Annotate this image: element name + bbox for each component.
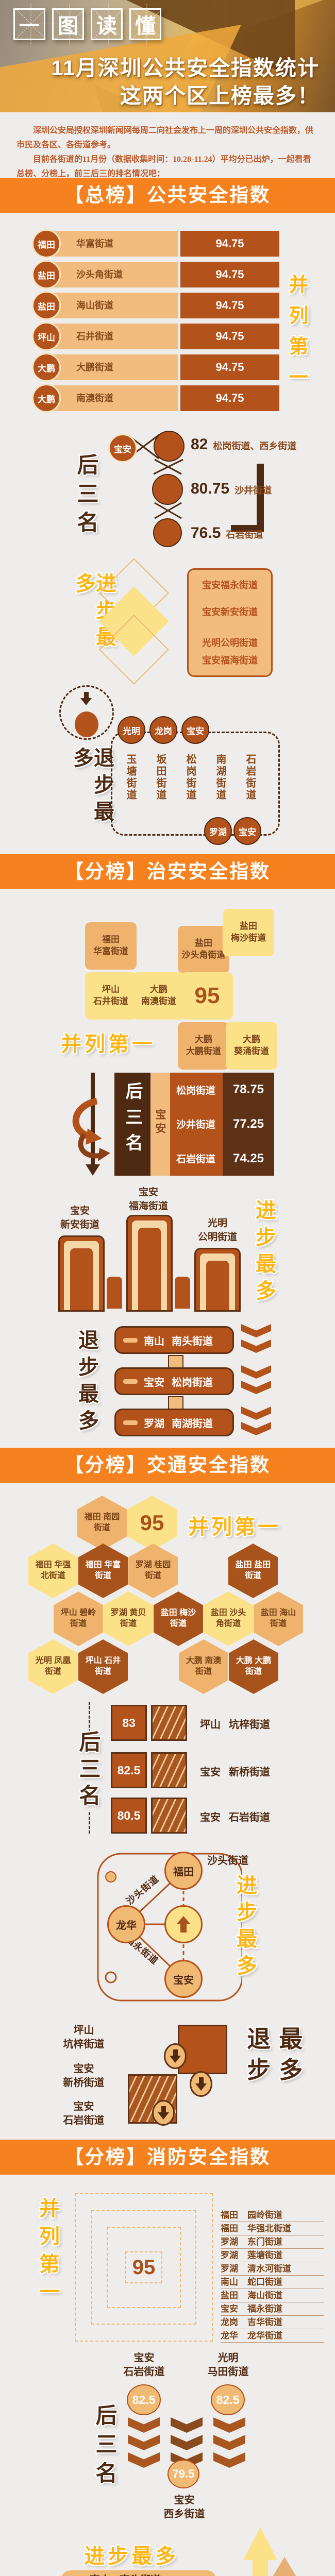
score-circle: 82.5 [127,2384,161,2415]
hex-tile: 大鹏 大鹏街道 [229,1639,278,1694]
bottom-three-entry: 宝安新桥街道 [200,1764,278,1778]
bottom-three-entry: 80.75沙井街道 [191,480,272,498]
rank-row: 大鹏街道94.75大鹏 [32,354,279,380]
district-badge: 大鹏 [32,384,61,413]
street-bar: 大鹏街道 [46,354,178,380]
badge-box: 一 [13,8,45,40]
district-badge: 光明 [118,716,145,744]
puzzle-tile: 盐田沙头角街道 [178,926,229,973]
bar-label: 宝安新安街道 [49,1205,111,1232]
tied-first-label: 并列第一 [188,1510,281,1540]
intro-paragraphs: 深圳公安局授权深圳新闻网每周二向社会发布上一周的深圳公共安全指数，供市民及各区、… [0,112,335,178]
overall-most-declined: 退步最多 光明 龙岗 宝安 玉塘街道 坂田街道 松岗街道 南湖街道 石岩街道 罗… [0,684,335,846]
rank-node [152,474,183,505]
district-badge: 龙岗 [149,716,177,744]
list-row: 罗湖清水河街道 [221,2262,324,2276]
district-badge: 宝安 [181,716,209,744]
overall-first-ranking: 华富街道94.75福田 沙头角街道94.75盐田 海山街道94.75盐田 石井街… [0,231,335,414]
rank-row: 石井街道94.75坪山 [32,324,279,349]
decline-street: 坂田街道 [155,754,165,813]
up-arrow-icon [243,2527,277,2576]
badge-box: 读 [91,8,123,40]
puzzle-tile: 盐田梅沙街道 [223,909,274,956]
decline-entry: 坪山坑梓街道 [46,2024,121,2052]
bottom-three-label: 后三名 [75,453,97,540]
hex-tile: 盐田 梅沙街道 [154,1591,203,1646]
hex-tile: 大鹏 南澳街道 [179,1639,228,1694]
rank-row: 海山街道94.75盐田 [32,293,279,318]
district-badge: 盐田 [32,291,61,320]
bar-label: 宝安福海街道 [118,1186,179,1213]
section-title-police: 【分榜】治安安全指数 [0,854,335,889]
yitu-dudong-badge: 一 图 读 懂 [13,8,168,40]
score-value: 78.75 [223,1082,274,1097]
score-value: 95 [125,2251,162,2283]
improve-street: 光明公明街道 [189,636,271,649]
hex-tile: 盐田 沙头角街道 [204,1591,253,1646]
decline-street: 南湖街道 [215,754,225,813]
decline-entry: 宝安新桥街道 [46,2062,121,2090]
decline-row: 南山南头街道 [114,1326,234,1354]
hex-tile: 福田 华富街道 [78,1544,128,1598]
score-bar: 94.75 [180,231,279,257]
intro-p1: 深圳公安局授权深圳新闻网每周二向社会发布上一周的深圳公共安全指数，供市民及各区、… [16,124,319,152]
score-square: 82.5 [111,1752,147,1788]
badge-box: 图 [52,8,84,40]
down-arrow-dot [164,2043,187,2069]
street-label: 沙头街道 [207,1852,248,1867]
improve-street: 宝安福海街道 [189,653,271,667]
improve-diagram-lines [67,1846,242,2011]
score-tile: 95 [181,972,233,1020]
score-bar: 94.75 [180,262,279,287]
score-hex: 95 [127,1496,177,1550]
puzzle-tile: 大鹏葵涌街道 [226,1022,277,1070]
decline-row: 宝安松岗街道 [114,1367,234,1395]
list-row: 盐田海山街道 [221,2289,324,2302]
improve-label: 进步最多 [254,1199,274,1307]
solid-square [178,2025,227,2074]
hex-tile: 坪山 碧岭街道 [54,1591,103,1646]
fire-most-improved: 进步最多 南山南头街道 宝安福永街道 龙华龙华街道 [0,2527,335,2576]
down-chevrons-icon [213,2417,245,2470]
bottom-three-entry: 76.5石岩街道 [191,524,263,542]
decline-street: 玉塘街道 [125,754,136,813]
puzzle-tile: 大鹏大鹏街道 [178,1022,229,1070]
down-chevrons-icon [241,1365,271,1396]
tied-first-label: 并列第一 [287,274,306,398]
bottom-entry-label: 宝安石岩街道 [114,2351,174,2379]
improve-street-box: 宝安福永街道 宝安新安街道 光明公明街道 宝安福海街道 [187,568,273,677]
hex-tile: 罗湖 黄贝街道 [104,1591,153,1646]
tied-first-label: 并列第一 [37,2197,58,2309]
hex-tile: 坪山 石井街道 [78,1639,128,1694]
bar-label: 光明公明街道 [187,1217,248,1244]
hex-tile: 盐田 盐田街道 [228,1544,278,1598]
district-badge: 坪山 [32,322,61,351]
bottom-three-entry: 宝安石岩街道 [200,1809,278,1824]
police-first-puzzle: 福田华富街道 盐田沙头角街道 盐田梅沙街道 坪山石井街道 大鹏南澳街道 95 大… [0,903,335,1073]
district-badge: 盐田 [32,260,61,289]
down-chevrons-icon [128,2417,160,2470]
fire-first: 并列第一 95 福田园岭街道 福田华强北街道 罗湖东门街道 罗湖莲塘街道 罗湖清… [0,2191,335,2346]
main-title-line2: 这两个区上榜最多！ [120,78,320,109]
improve-bar [194,1248,241,1312]
hex-tile: 福田 南园街道 [77,1496,127,1550]
list-row: 南山蛇口街道 [221,2276,324,2289]
hex-tile: 光明 凤凰街道 [28,1639,78,1694]
main-title-line1: 11月深圳公共安全指数统计 [52,50,320,81]
decline-badge [59,685,114,740]
decline-label: 退步最多 [71,747,112,846]
list-row: 龙岗吉华街道 [221,2316,324,2329]
score-bar: 94.75 [180,324,279,349]
traffic-first-hexgrid: 福田 南园街道 95 并列第一 福田 华强北街道 福田 华富街道 罗湖 桂园街道… [0,1496,335,1697]
intro-p2: 目前各街道的11月份（数据收集时间：10.28-11.24）平均分已出炉，一起看… [16,152,319,181]
section-title-overall: 【总榜】公共安全指数 [0,178,335,213]
decline-label: 退步最多 [241,2026,305,2096]
street-bar: 石井街道 [46,324,178,349]
score-circle: 79.5 [167,2460,199,2488]
down-arrow-icon [80,692,92,705]
district-badge: 罗湖 [204,817,232,845]
puzzle-tile: 大鹏南澳街道 [133,972,185,1020]
district-badge: 宝安 [108,434,137,463]
police-bottom-panel: 后三名 宝安 松岗街道 沙井街道 石岩街道 78.75 77.25 74.25 [114,1073,274,1176]
down-arrow-dot [152,2100,175,2126]
street-bar: 华富街道 [46,231,178,257]
decline-entry: 宝安石岩街道 [46,2100,121,2128]
rank-node [154,431,185,462]
score-bar: 94.75 [180,354,279,380]
street-label: 石岩街道 [170,1151,223,1165]
score-circle: 82.5 [211,2384,245,2415]
police-bottom-three: 后三名 宝安 松岗街道 沙井街道 石岩街道 78.75 77.25 74.25 [0,1073,335,1176]
bottom-entry-label: 光明马田街道 [198,2351,258,2379]
small-bar [175,1277,190,1309]
hex-tile: 罗湖 桂园街道 [128,1544,178,1598]
district-badge: 宝安 [233,817,261,845]
score-value: 77.25 [223,1117,274,1131]
rank-row: 沙头角街道94.75盐田 [32,262,279,287]
overall-most-improved: 进步最多 宝安福永街道 宝安新安街道 光明公明街道 宝安福海街道 [0,568,335,679]
list-row: 龙华龙华街道 [221,2329,324,2343]
decline-street: 松岗街道 [185,754,195,813]
decline-dot [75,711,98,737]
puzzle-tile: 福田华富街道 [85,922,137,970]
hatch-square [151,1798,187,1834]
bottom-three-entry: 82松岗街道、西乡街道 [191,436,296,453]
score-value: 74.25 [223,1151,274,1166]
infographic-canvas: 一 图 读 懂 11月深圳公共安全指数统计 这两个区上榜最多！ 深圳公安局授权深… [0,0,335,2576]
hex-tile: 福田 华强北街道 [28,1544,78,1598]
district-label: 宝安 [155,1109,165,1137]
score-bar: 94.75 [180,293,279,318]
street-label: 沙井街道 [170,1117,223,1131]
spiral-arrow-icon [61,1073,112,1176]
district-node: 宝安 [164,1960,203,1998]
bottom-entry-label: 宝安西乡街道 [152,2494,216,2521]
list-row: 罗湖东门街道 [221,2235,324,2249]
score-square: 80.5 [111,1798,147,1834]
rank-row: 南澳街道94.75大鹏 [32,385,279,411]
district-badge: 福田 [32,229,61,258]
down-arrow-dot [190,2071,212,2097]
improve-label: 进步最多 [84,2539,179,2569]
list-row: 宝安福永街道 [221,2302,324,2316]
list-row: 福田华强北街道 [221,2222,324,2235]
fire-bottom-three: 宝安石岩街道 光明马田街道 82.5 82.5 后三名 79.5 宝安西乡街道 [0,2348,335,2529]
district-node: 龙华 [107,1905,145,1943]
traffic-most-improved: 沙头街道 福永街道 福田 沙头街道 龙华 宝安 进步最多 [0,1846,335,2011]
improve-bar [58,1235,105,1312]
section-title-traffic: 【分榜】交通安全指数 [0,1448,335,1483]
puzzle-tile: 坪山石井街道 [85,972,137,1020]
hatch-square [151,1752,187,1788]
improve-row: 南山南头街道 [61,2570,216,2576]
header-banner: 一 图 读 懂 11月深圳公共安全指数统计 这两个区上榜最多！ [0,0,335,112]
police-most-declined: 退步最多 南山南头街道 宝安松岗街道 罗湖南湖街道 [0,1323,335,1444]
street-bar: 海山街道 [46,293,178,318]
improve-label: 进步最多 [234,1874,255,1981]
hex-tile: 盐田 海山街道 [254,1591,303,1646]
decline-street: 石岩街道 [245,754,255,813]
down-chevrons-icon [241,1406,271,1437]
police-most-improved: 宝安新安街道 宝安福海街道 光明公明街道 进步最多 [0,1185,335,1314]
district-node: 福田 [164,1852,203,1890]
decline-label: 退步最多 [76,1329,97,1436]
street-label: 松岗街道 [170,1083,223,1097]
up-arrow-node [164,1905,203,1943]
rank-node [153,518,182,547]
bottom-three-label: 后三名 [124,1082,141,1159]
small-bar [107,1277,122,1309]
badge-box: 懂 [129,8,161,40]
score-square: 83 [111,1705,147,1741]
list-row: 罗湖莲塘街道 [221,2249,324,2262]
traffic-bottom-three: 后三名 83 坪山坑梓街道 82.5 宝安新桥街道 80.5 宝安石岩街道 [0,1702,335,1836]
section-title-fire: 【分榜】消防安全指数 [0,2140,335,2175]
street-bar: 南澳街道 [46,385,178,411]
improve-street: 宝安新安街道 [189,605,271,618]
bottom-three-label: 后三名 [77,1731,99,1811]
bottom-three-label: 后三名 [94,2404,115,2490]
hatch-square [151,1705,187,1741]
list-row: 福田园岭街道 [221,2209,324,2222]
overall-bottom-three: 后三名 宝安 82松岗街道、西乡街道 80.75沙井街道 76.5石岩街道 [0,427,335,555]
street-bar: 沙头角街道 [46,262,178,287]
rank-row: 华富街道94.75福田 [32,231,279,257]
decline-row: 罗湖南湖街道 [114,1409,234,1436]
tied-first-label: 并列第一 [61,1027,156,1057]
improve-bar [126,1215,173,1312]
down-chevrons-icon [241,1324,271,1355]
bottom-three-entry: 坪山坑梓街道 [200,1716,278,1731]
traffic-most-declined: 坪山坑梓街道 宝安新桥街道 宝安石岩街道 退步最多 [0,2019,335,2129]
district-badge: 大鹏 [32,353,61,382]
fire-first-list: 福田园岭街道 福田华强北街道 罗湖东门街道 罗湖莲塘街道 罗湖清水河街道 南山蛇… [221,2209,324,2343]
score-bar: 94.75 [180,385,279,411]
improve-street: 宝安福永街道 [189,578,271,591]
